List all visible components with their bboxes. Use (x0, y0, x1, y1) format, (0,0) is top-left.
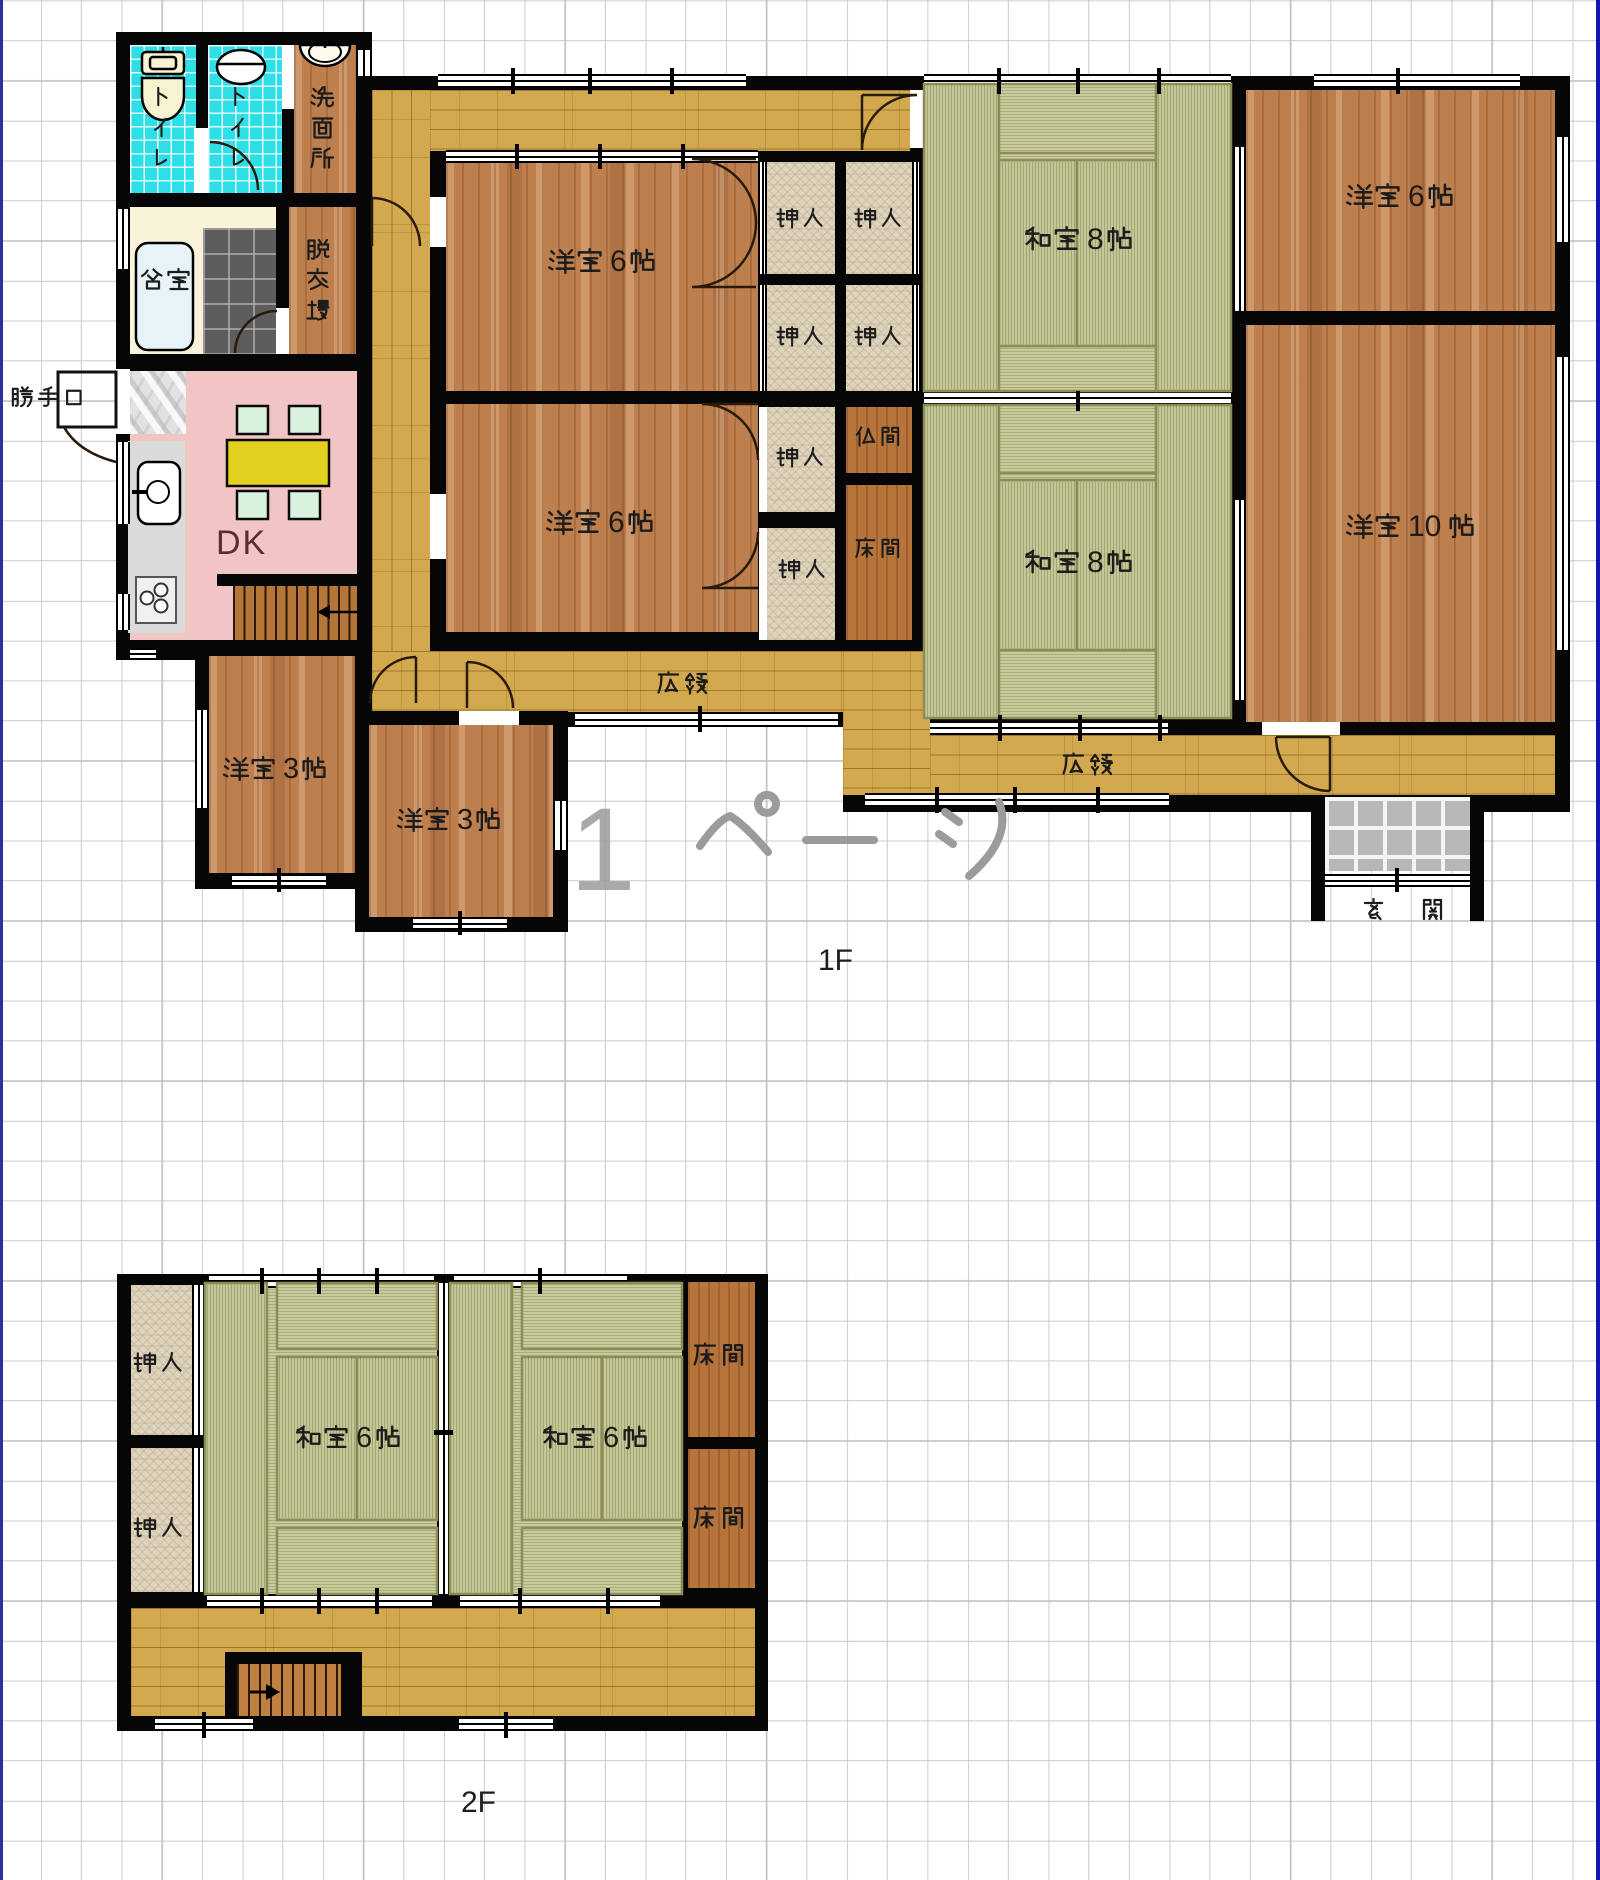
svg-text:10: 10 (1408, 510, 1441, 543)
svg-text:6: 6 (608, 506, 625, 539)
svg-text:6: 6 (603, 1422, 619, 1454)
svg-text:3: 3 (457, 804, 473, 836)
svg-text:8: 8 (1087, 223, 1104, 256)
svg-text:6: 6 (610, 245, 627, 278)
svg-text:3: 3 (283, 753, 299, 785)
svg-text:8: 8 (1087, 546, 1104, 579)
svg-text:6: 6 (1408, 180, 1425, 213)
svg-text:6: 6 (356, 1422, 372, 1454)
